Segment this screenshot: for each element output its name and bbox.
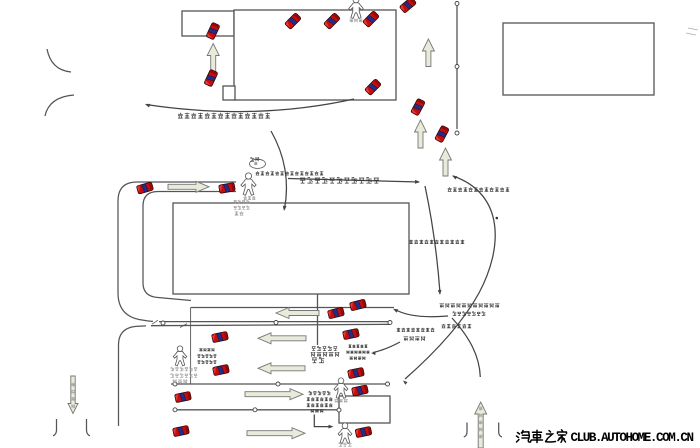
svg-text:CLUB.AUTOHOME.COM.CN: CLUB.AUTOHOME.COM.CN <box>571 431 694 445</box>
